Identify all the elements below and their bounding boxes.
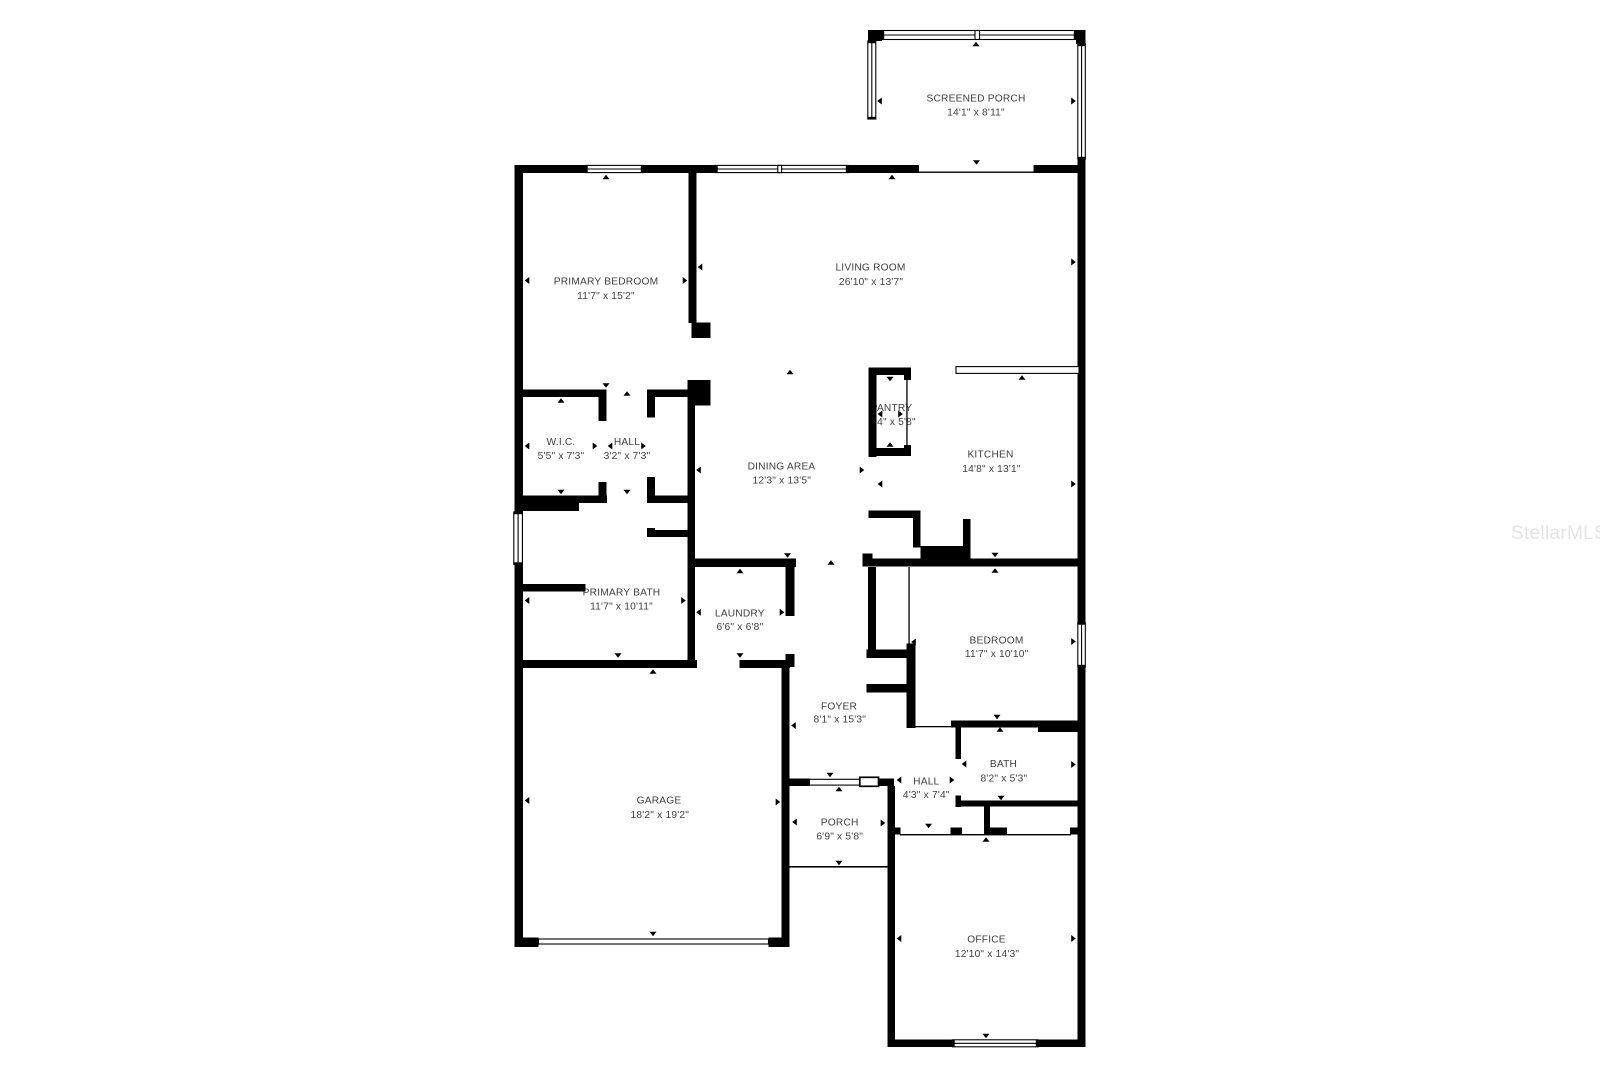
svg-text:12'10" x 14'3": 12'10" x 14'3"	[955, 949, 1020, 960]
svg-text:LAUNDRY: LAUNDRY	[715, 608, 765, 619]
svg-text:14'1" x 8'11": 14'1" x 8'11"	[947, 108, 1005, 119]
svg-text:StellarMLS: StellarMLS	[1511, 523, 1600, 544]
svg-text:5'5" x 7'3": 5'5" x 7'3"	[538, 451, 585, 462]
svg-text:LIVING ROOM: LIVING ROOM	[835, 263, 905, 274]
svg-text:11'7" x 10'10": 11'7" x 10'10"	[965, 649, 1029, 660]
svg-text:PORCH: PORCH	[821, 817, 859, 828]
svg-text:PRIMARY BATH: PRIMARY BATH	[583, 587, 661, 598]
svg-text:HALL: HALL	[614, 437, 640, 448]
svg-text:6'9" x 5'8": 6'9" x 5'8"	[816, 831, 863, 842]
svg-text:DINING AREA: DINING AREA	[748, 461, 816, 472]
svg-text:PRIMARY BEDROOM: PRIMARY BEDROOM	[554, 277, 659, 288]
svg-text:12'3" x 13'5": 12'3" x 13'5"	[753, 476, 812, 487]
svg-text:OFFICE: OFFICE	[967, 935, 1006, 946]
svg-text:SCREENED PORCH: SCREENED PORCH	[926, 94, 1025, 105]
svg-text:11'7" x 10'11": 11'7" x 10'11"	[590, 601, 653, 612]
svg-text:GARAGE: GARAGE	[637, 796, 682, 807]
svg-text:8'2" x 5'3": 8'2" x 5'3"	[981, 773, 1028, 784]
svg-text:BATH: BATH	[990, 759, 1017, 770]
svg-text:BEDROOM: BEDROOM	[969, 635, 1023, 646]
svg-text:W.I.C.: W.I.C.	[547, 437, 576, 448]
svg-text:FOYER: FOYER	[821, 701, 857, 712]
svg-text:4'3" x 7'4": 4'3" x 7'4"	[903, 790, 950, 801]
svg-text:KITCHEN: KITCHEN	[967, 450, 1013, 461]
svg-text:18'2" x 19'2": 18'2" x 19'2"	[631, 810, 690, 821]
svg-text:26'10" x 13'7": 26'10" x 13'7"	[839, 277, 904, 288]
svg-text:8'1" x 15'3": 8'1" x 15'3"	[813, 715, 866, 726]
svg-text:14'8" x 13'1": 14'8" x 13'1"	[962, 464, 1021, 475]
svg-text:3'2" x 7'3": 3'2" x 7'3"	[604, 451, 651, 462]
svg-text:6'6" x 6'8": 6'6" x 6'8"	[717, 622, 764, 633]
svg-text:HALL: HALL	[913, 776, 939, 787]
svg-text:PANTRY: PANTRY	[871, 403, 913, 414]
svg-text:11'7" x 15'2": 11'7" x 15'2"	[577, 291, 635, 302]
